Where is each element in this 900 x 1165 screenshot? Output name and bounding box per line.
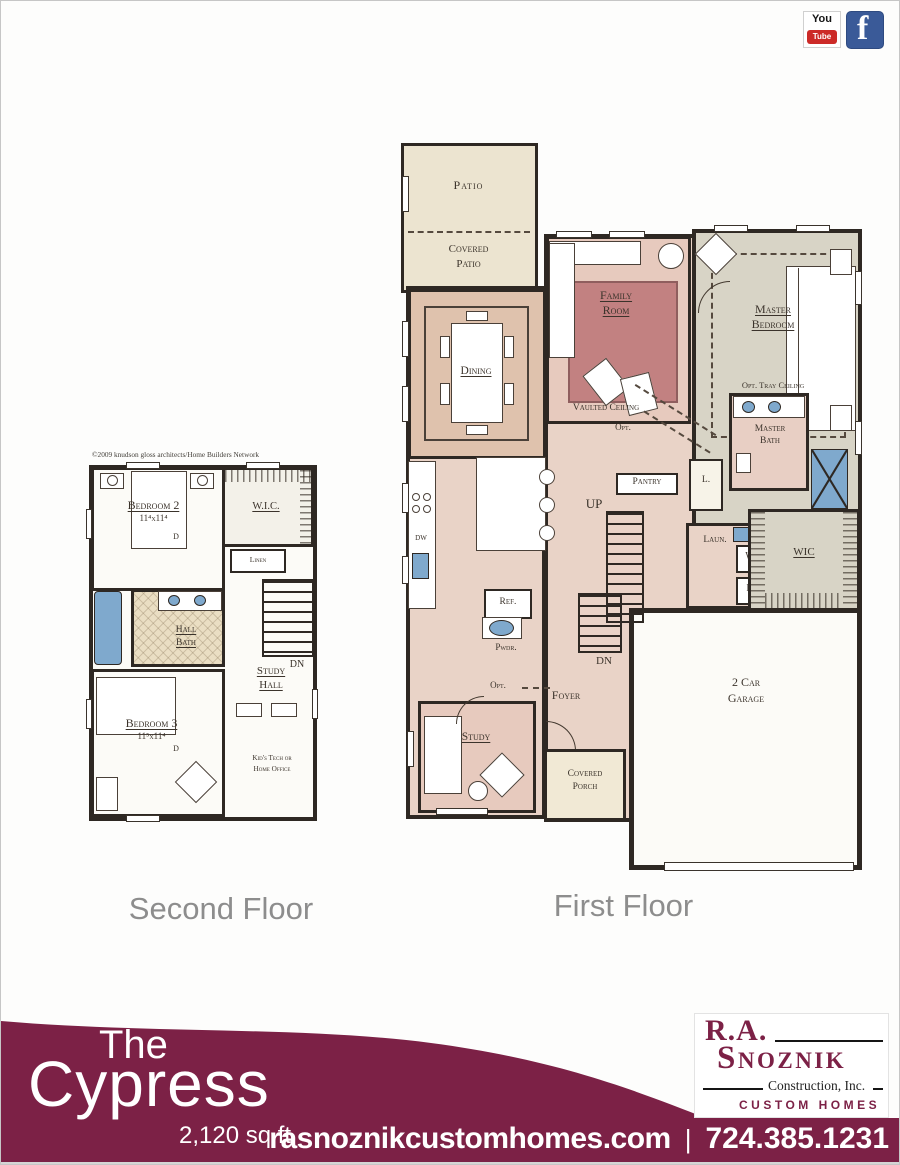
first-floor-caption: First Floor [511, 888, 736, 924]
wic-rack-bottom [765, 593, 843, 608]
wic-rack-left [751, 512, 765, 608]
linen-label: Linen [232, 556, 284, 564]
stairs-down [578, 593, 622, 653]
plan-title-name: Cypress [28, 1047, 270, 1121]
dining-chair-6 [466, 425, 488, 435]
study-chair [468, 781, 488, 801]
kids-desk-1 [236, 703, 262, 717]
window-mark [714, 225, 748, 232]
dining-chair-3 [504, 336, 514, 358]
range-burner-3 [412, 505, 420, 513]
family-room-label-1: Family [576, 289, 656, 302]
study-hall-label-1: Study [231, 665, 311, 677]
covered-patio-divider [408, 231, 530, 233]
l-closet: L. [689, 459, 723, 511]
hall-bath-label-2: Bath [156, 638, 216, 648]
kids-tech-label-2: Home Office [236, 766, 308, 774]
study-desk [424, 716, 462, 794]
tray-ceiling-label: Opt. Tray Ceiling [708, 381, 838, 390]
l-closet-label: L. [691, 475, 721, 485]
contact-divider: | [685, 1124, 692, 1155]
hall-bath-sink-2 [194, 595, 206, 606]
opt-lower-label: Opt. [476, 681, 520, 691]
range-burner-1 [412, 493, 420, 501]
toilet [736, 453, 751, 473]
dishwasher-label: DW [408, 535, 434, 543]
opt-upper-label: Opt. [601, 423, 645, 433]
dn-label: DN [584, 655, 624, 667]
range-burner-2 [423, 493, 431, 501]
window-mark [86, 509, 92, 539]
copyright-text: ©2009 knudson gloss architects/Home Buil… [92, 451, 316, 459]
bedroom2-label: Bedroom 2 [96, 499, 211, 512]
patio-block [401, 143, 538, 293]
wic-label: WIC [765, 546, 843, 558]
porch-label-1: Covered [548, 769, 622, 779]
garage-room [629, 608, 862, 870]
family-room-label-2: Room [576, 304, 656, 317]
logo-construction: Construction, Inc. [768, 1078, 865, 1094]
pantry-box: Pantry [616, 473, 678, 495]
kitchen-sink [412, 553, 429, 579]
window-mark [312, 689, 318, 719]
window-mark [855, 271, 862, 305]
shower [811, 449, 848, 509]
window-mark [246, 462, 280, 469]
master-bedroom-label-1: Master [718, 303, 828, 316]
window-mark [402, 386, 409, 422]
foyer-label: Foyer [536, 689, 596, 702]
garage-door-opening [664, 862, 854, 871]
kids-tech-label-1: Kid's Tech or [236, 755, 308, 763]
window-mark [436, 808, 488, 815]
master-bedroom-label-2: Bedroom [718, 318, 828, 331]
sf-wic-rack-top [225, 470, 311, 482]
second-floor-caption: Second Floor [111, 891, 331, 927]
sf-wic-label: W.I.C. [226, 501, 306, 513]
window-mark [126, 815, 160, 822]
linen-closet: Linen [230, 549, 286, 573]
bath-sink-1 [742, 401, 755, 413]
range-burner-4 [423, 505, 431, 513]
kitchen-island [476, 457, 546, 551]
bedroom3-label: Bedroom 3 [94, 717, 209, 730]
dining-label: Dining [436, 365, 516, 378]
garage-label-1: 2 Car [676, 676, 816, 689]
window-mark [609, 231, 645, 238]
logo-line-right [873, 1088, 883, 1090]
dining-chair-2 [440, 383, 450, 405]
powder-sink [489, 620, 514, 636]
bath-sink-2 [768, 401, 781, 413]
dining-chair-5 [466, 311, 488, 321]
window-mark [126, 462, 160, 469]
window-mark [407, 731, 414, 767]
up-label: UP [574, 497, 614, 511]
window-mark [86, 699, 92, 729]
logo-box: R.A. Snoznik Construction, Inc. CUSTOM H… [694, 1013, 889, 1118]
facebook-icon[interactable]: f [846, 11, 884, 49]
youtube-wordmark-top: You [804, 13, 840, 25]
flyer-page: You Tube f Patio Covered Patio Family Ro… [0, 0, 900, 1165]
nightstand-2 [830, 405, 852, 431]
contact-bar: rasnoznikcustomhomes.com | 724.385.1231 [1, 1122, 889, 1156]
banner: The Cypress 2,120 sq ft R.A. Snoznik Con… [1, 1001, 900, 1165]
patio-label: Patio [416, 179, 521, 192]
sf-stairs [262, 579, 314, 657]
window-mark [796, 225, 830, 232]
powder-label: Pwdr. [481, 643, 531, 653]
study-label: Study [431, 731, 521, 744]
website-text: rasnoznikcustomhomes.com [269, 1122, 670, 1156]
facebook-f-glyph: f [857, 11, 884, 48]
logo-surname: Snoznik [717, 1040, 846, 1077]
ceiling-fixture-2 [197, 475, 208, 486]
kids-desk-2 [271, 703, 297, 717]
shower-x [812, 450, 847, 508]
master-bath-label-2: Bath [736, 436, 804, 446]
hall-bath-label-1: Hall [156, 625, 216, 635]
nightstand-1 [830, 249, 852, 275]
bedroom3-dresser [96, 777, 118, 811]
ceiling-fixture-1 [107, 475, 118, 486]
hall-bath-sink-1 [168, 595, 180, 606]
bedroom3-door-label: D [166, 745, 186, 754]
side-table [658, 243, 684, 269]
master-bath-label-1: Master [736, 424, 804, 434]
stool-2 [539, 497, 555, 513]
bedroom2-door-label: D [166, 533, 186, 542]
logo-custom-homes: CUSTOM HOMES [739, 1098, 880, 1112]
phone-text: 724.385.1231 [705, 1122, 889, 1156]
youtube-icon[interactable]: You Tube [803, 11, 841, 48]
window-mark [556, 231, 592, 238]
sofa-side [549, 243, 575, 358]
logo-line-left [703, 1088, 763, 1090]
covered-patio-label-1: Covered [416, 243, 521, 255]
porch-label-2: Porch [548, 782, 622, 792]
bedroom3-dim: 11⁵x11⁴ [94, 732, 209, 742]
study-hall-label-2: Hall [231, 679, 311, 691]
youtube-tube-badge: Tube [807, 30, 837, 44]
covered-patio-label-2: Patio [416, 258, 521, 270]
ref-box: Ref. [484, 589, 532, 619]
dining-chair-4 [504, 383, 514, 405]
second-floor-plan: ©2009 knudson gloss architects/Home Buil… [86, 449, 321, 824]
dining-chair-1 [440, 336, 450, 358]
window-mark [402, 176, 409, 212]
bathtub [94, 591, 122, 665]
window-mark [855, 421, 862, 455]
window-mark [402, 321, 409, 357]
window-mark [402, 556, 409, 584]
garage-label-2: Garage [676, 692, 816, 705]
stool-1 [539, 469, 555, 485]
window-mark [402, 483, 409, 513]
first-floor-plan: Patio Covered Patio Family Room Vaulted … [396, 131, 866, 871]
wic-rack-right [843, 512, 857, 608]
stool-3 [539, 525, 555, 541]
bedroom2-dim: 11⁴x11⁴ [96, 514, 211, 524]
